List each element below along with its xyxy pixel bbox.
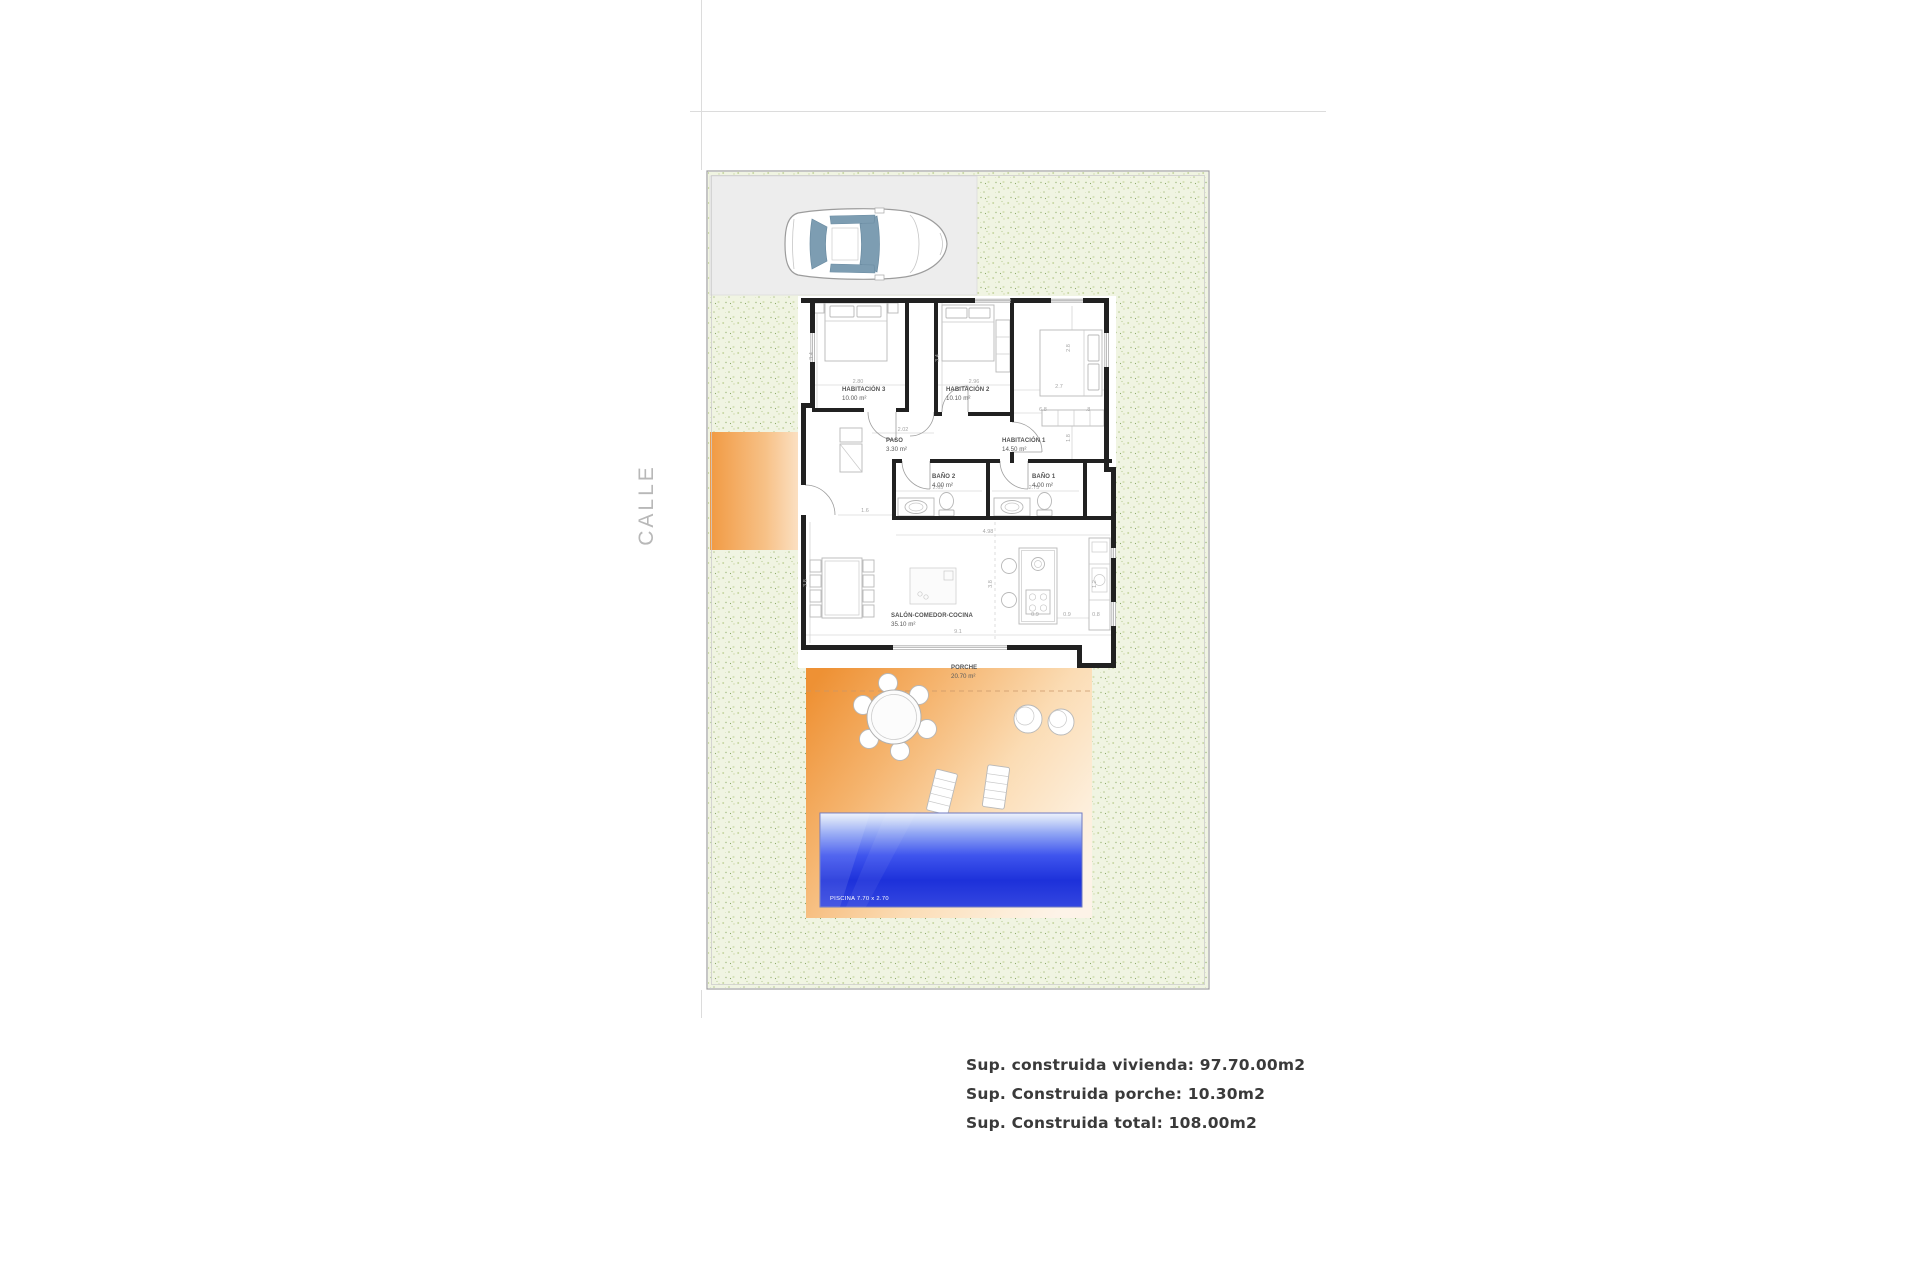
entry-walkway	[710, 432, 811, 550]
pool-label: PISCINA 7.70 x 2.70	[830, 896, 889, 902]
svg-text:6.8: 6.8	[1039, 407, 1047, 413]
svg-text:4.98: 4.98	[983, 529, 994, 535]
room-label-salon: SALÓN-COMEDOR-COCINA	[891, 611, 974, 619]
svg-text:4.00 m²: 4.00 m²	[932, 482, 953, 489]
car-icon	[785, 208, 947, 280]
sink-icon	[994, 498, 1030, 516]
svg-text:1.6: 1.6	[861, 508, 869, 514]
svg-text:3.8: 3.8	[803, 579, 809, 587]
stool-icon	[1002, 559, 1017, 574]
svg-text:10.10 m²: 10.10 m²	[946, 395, 970, 402]
summary-line-total: Sup. Construida total: 108.00m2	[966, 1109, 1305, 1138]
svg-text:2.02: 2.02	[898, 427, 909, 433]
street-boundary-line-top	[701, 0, 702, 170]
car-mirror-left	[875, 208, 884, 213]
building-plan: 2.80 2.96 2.7 3.4 3.4 2.8 6.8 .8 1.8 2.0…	[798, 296, 1116, 668]
plot-boundary-line	[690, 111, 1326, 112]
pouf-icon	[1048, 709, 1074, 735]
svg-text:3.8: 3.8	[988, 580, 994, 588]
plot-map: 6.2	[706, 170, 1210, 990]
svg-text:.8: .8	[1086, 407, 1091, 413]
svg-text:1.2: 1.2	[1092, 580, 1098, 588]
svg-text:3.4: 3.4	[809, 352, 815, 360]
svg-text:2.96: 2.96	[969, 379, 980, 385]
svg-text:10.00 m²: 10.00 m²	[842, 395, 866, 402]
toilet-icon	[1037, 493, 1052, 517]
room-label-bano-1: BAÑO 1	[1032, 473, 1056, 480]
pool: PISCINA 7.70 x 2.70	[820, 813, 1082, 907]
street-boundary-line-bottom	[701, 990, 702, 1018]
car-mirror-right	[875, 275, 884, 280]
street-label: CALLE	[635, 425, 663, 585]
built-area-summary: Sup. construida vivienda: 97.70.00m2 Sup…	[966, 1051, 1305, 1138]
svg-text:0.9: 0.9	[1063, 612, 1071, 618]
wardrobe-icon	[1042, 410, 1104, 426]
stool-icon	[1002, 593, 1017, 608]
svg-text:0.8: 0.8	[1092, 612, 1100, 618]
toilet-icon	[939, 493, 954, 517]
porch-label: PORCHE 20.70 m²	[951, 665, 977, 680]
svg-text:14.50 m²: 14.50 m²	[1002, 446, 1026, 453]
car-side-window-top	[830, 215, 875, 224]
svg-text:9.1: 9.1	[954, 629, 962, 635]
room-label-habitacion-2: HABITACIÓN 2	[946, 385, 990, 393]
svg-text:2.8: 2.8	[1066, 344, 1072, 352]
svg-text:3.30 m²: 3.30 m²	[886, 446, 907, 453]
laundry-closet-icon	[840, 428, 862, 472]
svg-text:4.00 m²: 4.00 m²	[1032, 482, 1053, 489]
svg-text:2.80: 2.80	[853, 379, 864, 385]
svg-text:0.9: 0.9	[1031, 612, 1039, 618]
room-label-bano-2: BAÑO 2	[932, 473, 956, 480]
svg-text:35.10 m²: 35.10 m²	[891, 621, 915, 628]
svg-text:3.4: 3.4	[935, 354, 941, 362]
sink-icon	[898, 498, 934, 516]
car-rear-window	[810, 219, 827, 269]
pouf-icon	[1014, 705, 1042, 733]
car-side-window-bottom	[830, 264, 875, 273]
rug-icon	[910, 568, 956, 604]
room-label-porche: PORCHE	[951, 665, 977, 671]
summary-line-porche: Sup. Construida porche: 10.30m2	[966, 1080, 1305, 1109]
svg-text:2.7: 2.7	[1055, 384, 1063, 390]
bed-icon	[942, 305, 994, 361]
site-plan-page: CALLE	[0, 0, 1920, 1280]
svg-text:20.70 m²: 20.70 m²	[951, 673, 975, 680]
room-label-paso: PASO	[886, 438, 903, 444]
car-windshield	[860, 216, 880, 272]
svg-text:1.8: 1.8	[1066, 434, 1072, 442]
summary-line-vivienda: Sup. construida vivienda: 97.70.00m2	[966, 1051, 1305, 1080]
bed-icon	[814, 303, 898, 361]
wardrobe-icon	[996, 320, 1010, 372]
room-label-habitacion-3: HABITACIÓN 3	[842, 385, 886, 393]
room-label-habitacion-1: HABITACIÓN 1	[1002, 436, 1046, 444]
bed-icon	[1040, 330, 1102, 396]
